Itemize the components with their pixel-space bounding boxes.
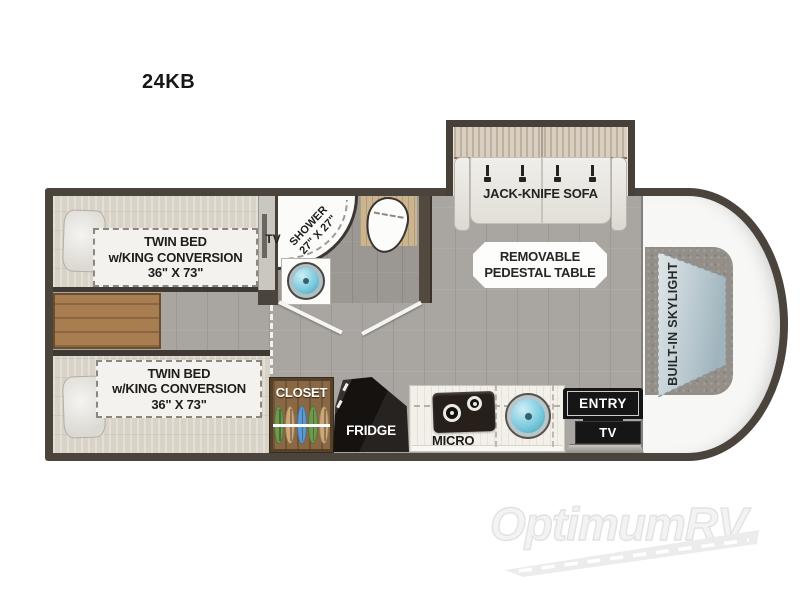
counter-seam-line	[552, 385, 554, 447]
bedroom-bath-wall-end	[258, 290, 278, 305]
entry-label: ENTRY	[579, 396, 627, 411]
entry-sign-frame: ENTRY	[567, 391, 639, 416]
sofa-label: JACK-KNIFE SOFA	[446, 186, 635, 201]
watermark-road-icon	[497, 526, 767, 578]
seatbelt-icon	[518, 165, 527, 182]
partition-dashed-line	[270, 305, 273, 383]
bed-label-line1: TWIN BED	[144, 234, 207, 250]
twin-bed-top: TWIN BED w/KING CONVERSION 36" X 73"	[53, 196, 258, 292]
entry-steps	[566, 444, 644, 453]
bed-label-line1: TWIN BED	[148, 366, 211, 382]
bedroom-tv-label: TV	[258, 232, 288, 246]
burner-icon	[443, 404, 461, 422]
fridge-label: FRIDGE	[333, 423, 409, 438]
page-title: 24KB	[142, 71, 195, 94]
twin-bed-bottom: TWIN BED w/KING CONVERSION 36" X 73"	[53, 350, 270, 453]
entry-tv-sign: TV	[575, 421, 641, 444]
microwave-label: MICRO	[432, 433, 482, 448]
bed-label-line3: 36" X 73"	[148, 265, 203, 281]
skylight-label: BUILT-IN SKYLIGHT	[666, 262, 680, 386]
bathroom-wall-right	[419, 196, 432, 303]
bath-sink-icon	[287, 262, 325, 300]
sofa-back-seam	[541, 127, 543, 157]
bed-label-line2: w/KING CONVERSION	[109, 250, 243, 266]
sofa-back-cushions	[454, 127, 627, 159]
kitchen-sink-icon	[505, 393, 551, 439]
floorplan-page: 24KB JACK-KNIFE SOFA TWIN BED w/KING CON…	[0, 0, 800, 600]
entry-tv-label: TV	[599, 425, 617, 440]
burner-icon	[467, 396, 482, 411]
bed-label-panel: TWIN BED w/KING CONVERSION 36" X 73"	[96, 360, 262, 418]
counter-seam-line	[495, 385, 497, 447]
sink-drain	[303, 278, 309, 284]
bed-label-line2: w/KING CONVERSION	[112, 381, 246, 397]
sink-drain	[525, 413, 532, 420]
wood-dresser	[53, 293, 161, 349]
pedestal-table: REMOVABLE PEDESTAL TABLE	[473, 242, 607, 288]
bed-label-line3: 36" X 73"	[151, 397, 206, 413]
entry-sign: ENTRY	[563, 388, 643, 419]
bed-label-panel: TWIN BED w/KING CONVERSION 36" X 73"	[93, 228, 258, 287]
table-label-line1: REMOVABLE	[500, 249, 580, 265]
closet-label: CLOSET	[270, 385, 333, 400]
closet-rod	[273, 424, 330, 427]
seatbelt-icon	[588, 165, 597, 182]
seatbelt-icon	[483, 165, 492, 182]
cooktop-icon	[432, 391, 495, 433]
seatbelt-icon	[553, 165, 562, 182]
table-label-line2: PEDESTAL TABLE	[484, 265, 595, 281]
